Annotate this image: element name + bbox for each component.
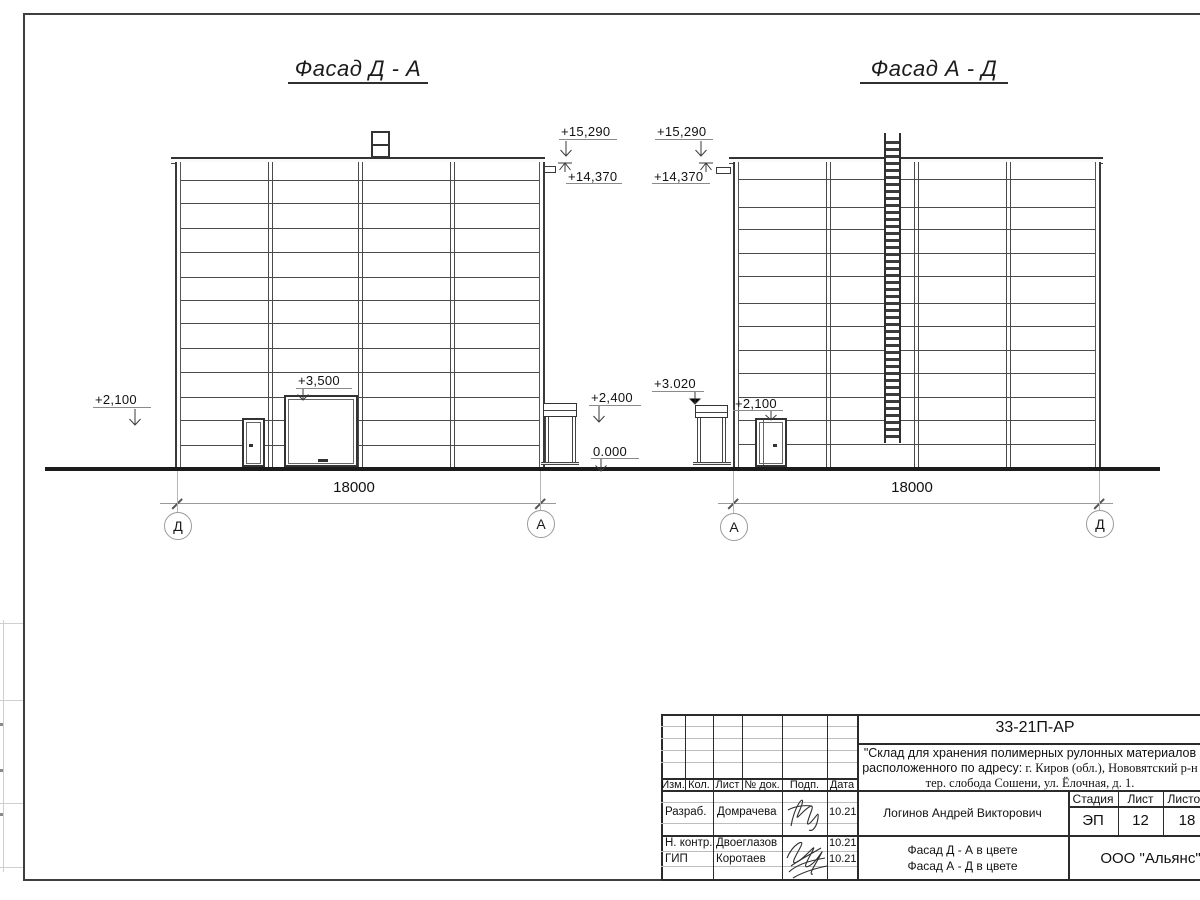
panel-joint-line [738,276,1096,277]
sheet-edge-table-line [3,620,4,872]
canopy-roof-line [696,412,727,413]
porch-base [541,462,579,465]
roof-ladder [884,133,901,443]
chief-name: Логинов Андрей Викторович [857,806,1068,820]
elevation-mark-3500: +3,500 [298,373,340,388]
extension-line [1099,471,1100,514]
elevation-mark-0000: 0.000 [593,444,627,459]
axis-marker-a: А [720,513,748,541]
elevation-arrow-down-icon [688,392,702,405]
elevation-arrow-down-icon [559,141,573,157]
project-description-line3: тер. слобода Сошени, ул. Ёлочная, д. 1. [857,776,1200,791]
door-handle [249,444,253,447]
document-number: 33-21П-АР [857,719,1200,737]
panel-joint-line [738,326,1096,327]
elevation-mark-14370: +14,370 [568,169,617,184]
elevation-mark-2100: +2,100 [735,396,777,411]
address-label: расположенного по адресу: [862,761,1022,775]
titleblock-line [857,743,1200,745]
titleblock-line [1068,806,1200,808]
row-role: Разраб. [665,806,706,818]
panel-joint-line [180,445,540,446]
sheet-edge-table-line [0,700,23,701]
panel-joint-line [180,348,540,349]
elevation-mark-15290: +15,290 [657,124,706,139]
row-name: Домрачева [717,806,777,818]
porch-post [572,417,576,464]
gate-panel [288,399,354,464]
extension-line [733,471,734,514]
chimney [371,131,390,158]
panel-joint-line [180,180,540,181]
panel-joint-line [738,397,1096,398]
personnel-door [242,418,265,467]
stage-label: Стадия [1068,792,1118,806]
door-handle [773,444,777,447]
panel-joint-line [180,228,540,229]
elevation-mark-3020: +3.020 [654,376,696,391]
dimension-line [160,503,556,504]
column-line [358,162,363,467]
col-header-izm: Изм. [661,779,685,791]
elevation-mark-2100: +2,100 [95,392,137,407]
panel-joint-line [180,397,540,398]
col-header-data: Дата [827,779,857,791]
elevation-underline [566,183,622,184]
chimney-divider [373,144,388,146]
canopy-post [722,418,726,464]
panel-joint-line [738,350,1096,351]
extension-line [540,471,541,514]
drawing-name-line2: Фасад А - Д в цвете [857,859,1068,873]
sheet-number: 12 [1118,812,1163,829]
axis-marker-a: А [527,510,555,538]
door-leaf [246,422,261,464]
row-role: ГИП [665,853,688,865]
signature-scribble-icon [785,792,827,834]
titleblock-line [713,714,714,881]
sheet-label: Лист [1118,792,1163,806]
company-name: ООО "Альянс" [1068,850,1200,867]
axis-marker-d: Д [1086,510,1114,538]
sheet-edge-table-line [0,867,23,868]
titleblock-border [661,714,663,881]
elevation-mark-2400: +2,400 [591,390,633,405]
panel-joint-line [738,420,1096,421]
sheet-edge-table-line [0,803,23,804]
corner-column-line [1095,162,1096,467]
canopy-base [693,462,731,465]
panel-joint-line [180,300,540,301]
elevation-underline [559,139,617,140]
panel-joint-line [180,252,540,253]
canopy-roof [695,405,728,418]
elevation-arrow-down-icon [296,389,310,401]
col-header-podp: Подп. [782,779,827,791]
signature-scribble-icon [783,836,829,880]
col-header-list: Лист [713,779,742,791]
personnel-door [755,418,787,467]
drawing-sheet: Фасад Д - А Фасад А - Д [0,0,1200,900]
sheets-label: Листов [1163,792,1200,806]
porch-roof [543,403,577,417]
drawing-name-line1: Фасад Д - А в цвете [857,843,1068,857]
panel-joint-line [180,372,540,373]
row-date: 10.21 [829,806,857,818]
axis-marker-d: Д [164,512,192,540]
corner-column-line [738,162,739,467]
panel-joint-line [180,203,540,204]
panel-joint-line [180,420,540,421]
panel-joint-line [180,323,540,324]
porch-roof-line [544,410,576,411]
row-date: 10.21 [829,837,857,849]
sheet-edge-artifact [0,769,3,772]
project-description-line2: расположенного по адресу: г. Киров (обл.… [857,761,1200,776]
address-value: г. Киров (обл.), Нововятский р-н [1022,761,1198,775]
panel-joint-line [738,303,1096,304]
row-date: 10.21 [829,853,857,865]
corner-column-line [180,162,181,467]
elevation-underline [93,407,151,408]
row-name: Коротаев [716,853,766,865]
elevation-mark-15290: +15,290 [561,124,610,139]
row-name: Двоеглазов [716,837,777,849]
elevation-arrow-down-icon [592,406,606,423]
facade1-title: Фасад Д - А [288,56,428,84]
dimension-value: 18000 [304,479,404,496]
gate [284,395,358,467]
panel-joint-line [738,207,1096,208]
column-line [268,162,273,467]
facade2-drain-bracket [716,167,731,174]
panel-joint-line [180,277,540,278]
elevation-arrow-down-icon [694,141,708,157]
sheet-edge-artifact [0,813,3,816]
column-line [450,162,455,467]
gate-handle [318,459,328,462]
ladder-rungs [886,141,899,441]
project-description-line1: "Склад для хранения полимерных рулонных … [857,746,1200,760]
door-stile-line [763,420,764,465]
corner-column-line [539,162,540,467]
canopy-post [697,418,701,464]
dimension-line [718,503,1113,504]
elevation-arrow-down-icon [764,411,778,421]
row-role: Н. контр. [665,837,712,849]
panel-joint-line [738,253,1096,254]
elevation-underline [655,139,713,140]
sheet-edge-table-line [0,623,23,624]
panel-joint-line [738,229,1096,230]
panel-joint-line [738,179,1096,180]
col-header-ndok: № док. [742,779,782,791]
facade2-wall [733,162,1101,467]
elevation-arrow-down-icon [594,459,608,472]
porch-post [545,417,549,464]
panel-joint-line [738,444,1096,445]
elevation-arrow-down-icon [128,409,142,426]
facade1-wall [175,162,545,467]
titleblock-border [661,879,1200,881]
elevation-underline [652,183,710,184]
dimension-value: 18000 [862,479,962,496]
sheet-edge-artifact [0,723,3,726]
extension-line [177,471,178,514]
sheets-total: 18 [1163,812,1200,829]
panel-joint-line [738,373,1096,374]
stage-value: ЭП [1068,812,1118,829]
col-header-kol: Кол. [685,779,713,791]
elevation-mark-14370: +14,370 [654,169,703,184]
facade2-title: Фасад А - Д [860,56,1008,84]
